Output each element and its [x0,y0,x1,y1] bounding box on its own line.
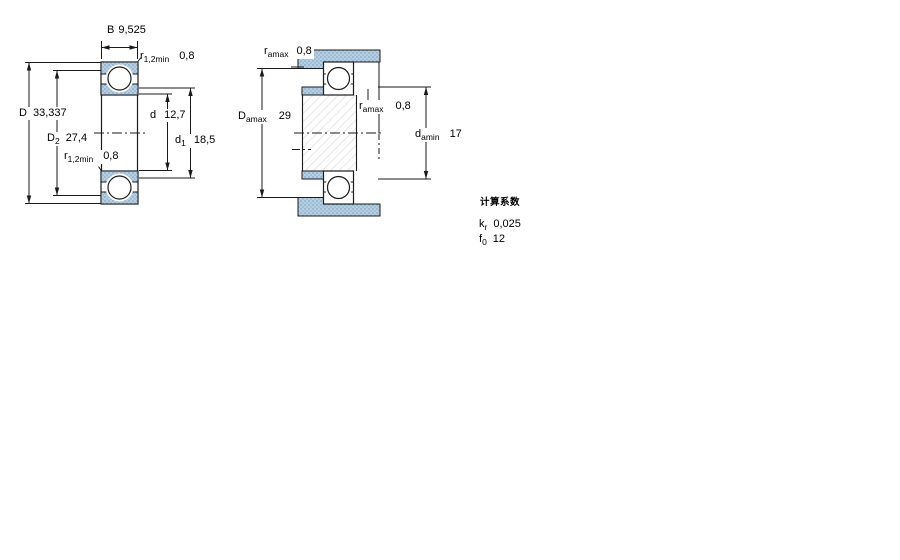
calc-factors-heading: 计算系数 [480,196,520,209]
right-bearing-cross-section [294,62,384,204]
dim-r-bottom-label: r1,2min0,8 [62,150,120,164]
dim-d1-label: d118,5 [173,134,217,148]
ball-top [328,68,350,90]
shaft-shoulder-bottom [302,171,324,179]
dim-d-label: d12,7 [148,109,188,122]
calc-factor-kr: kr0,025 [479,218,521,232]
shaft-shoulder-top [302,87,324,95]
dim-D-label: D33,337 [17,107,69,120]
ball-bottom [328,177,350,199]
dim-ra-top-label: ramax0,8 [262,45,314,59]
dim-B-label: B9,525 [107,24,146,37]
ball-bottom [108,176,131,199]
dim-D2-label: D227,4 [45,132,89,146]
technical-drawing [0,0,900,560]
calc-factor-f0: f012 [479,233,505,247]
dim-r-top-label: r1,2min0,8 [140,50,194,64]
dim-Da-label: Damax29 [236,110,293,124]
left-bearing-cross-section [94,62,146,204]
dim-ra-mid-label: ramax0,8 [357,100,413,114]
bearing-drawing-page: B9,525 r1,2min0,8 D33,337 D227,4 d12,7 d… [0,0,900,560]
ball-top [108,67,131,90]
dim-da-label: damin17 [413,128,464,142]
